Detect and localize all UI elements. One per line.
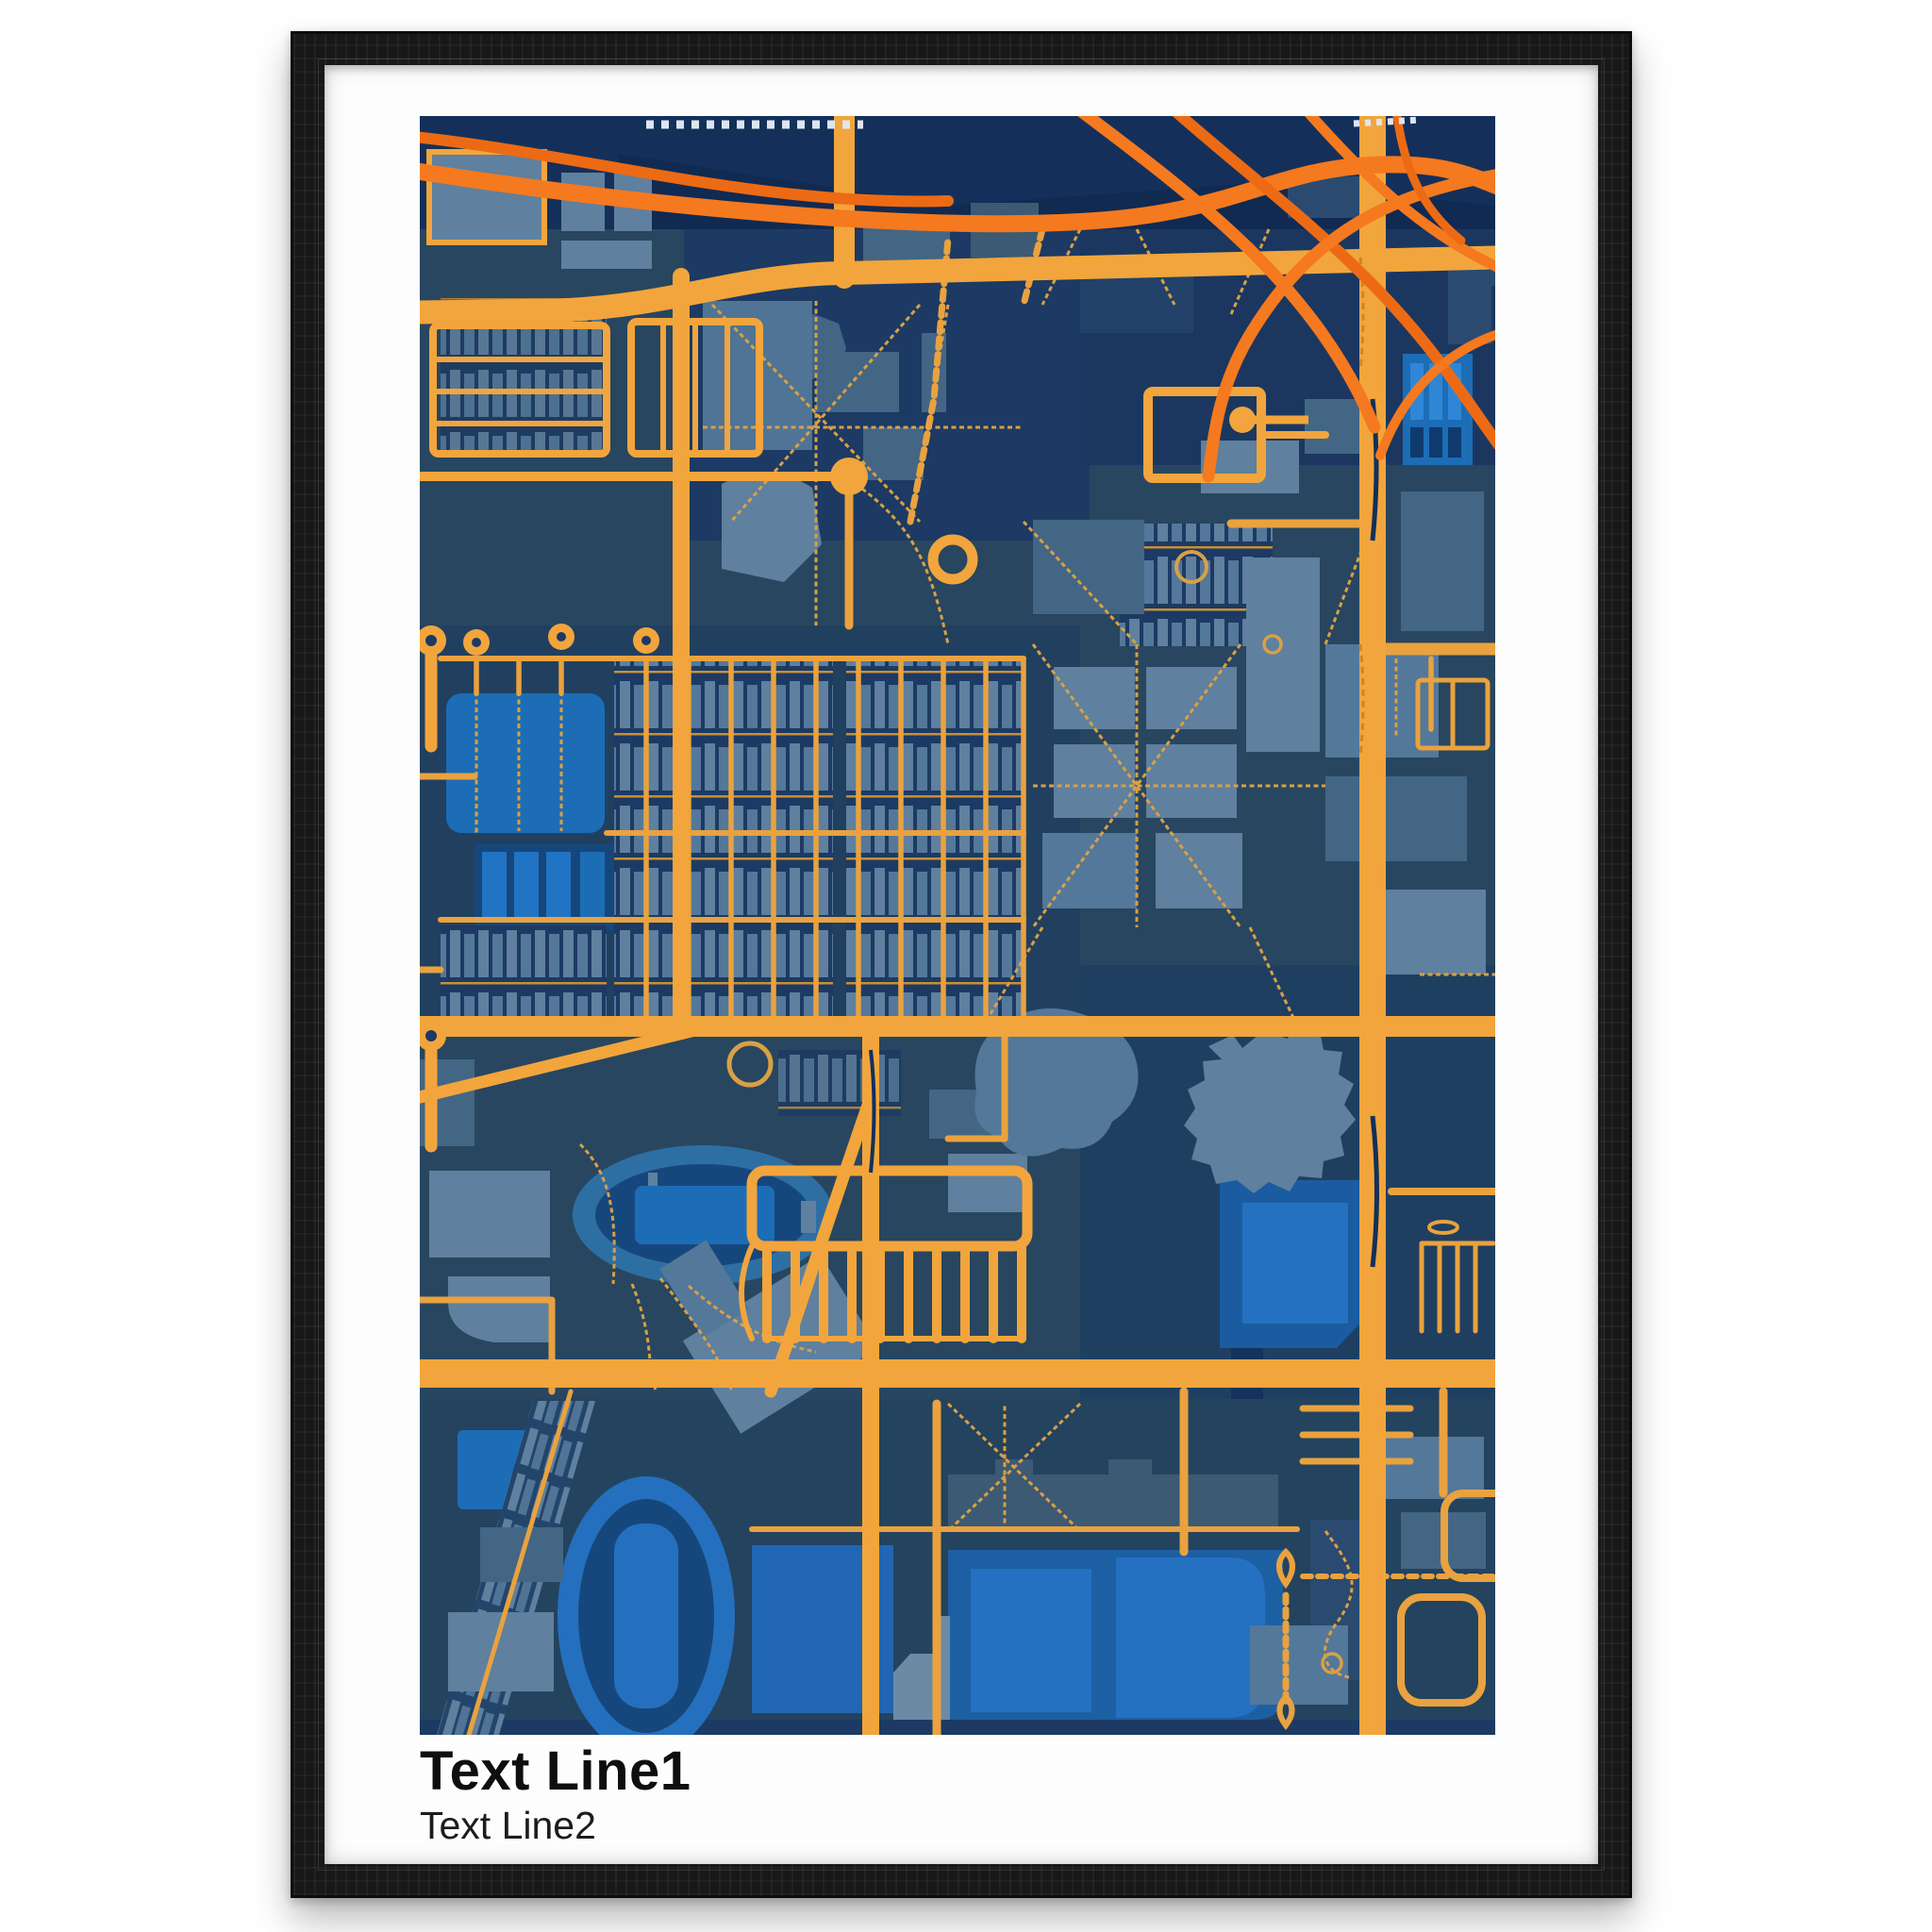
poster-caption: Text Line1 Text Line2 xyxy=(420,1743,1457,1847)
product-mockup-scene: Text Line1 Text Line2 xyxy=(0,0,1932,1932)
poster-subtitle: Text Line2 xyxy=(420,1804,1457,1847)
poster-mat: Text Line1 Text Line2 xyxy=(325,65,1598,1864)
map-poster-artwork xyxy=(420,116,1495,1735)
city-map-svg xyxy=(420,116,1495,1735)
poster-title: Text Line1 xyxy=(420,1743,1457,1800)
picture-frame: Text Line1 Text Line2 xyxy=(291,31,1632,1898)
